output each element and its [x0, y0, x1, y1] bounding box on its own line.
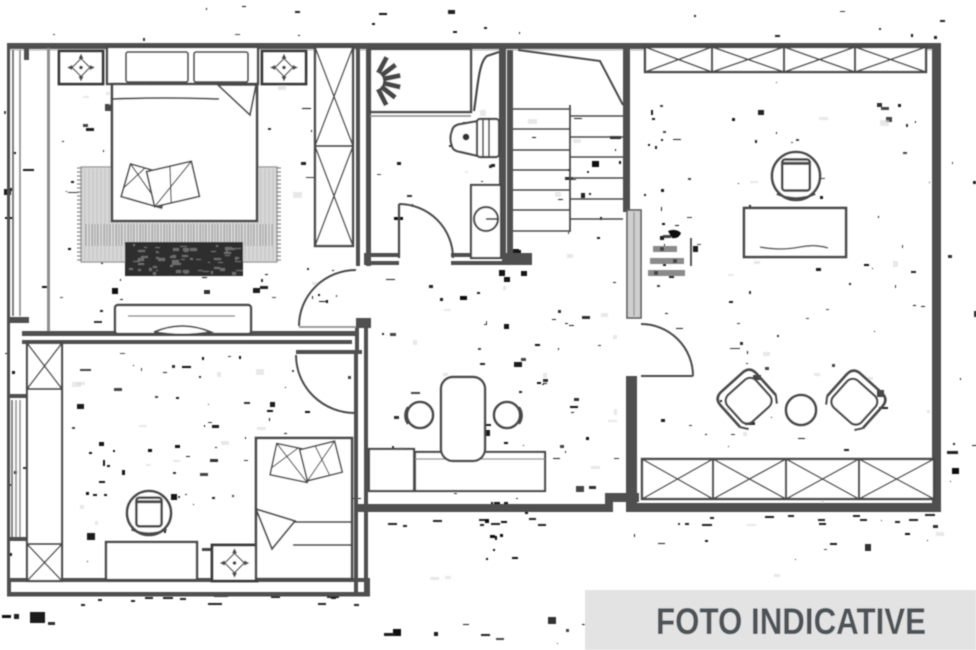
svg-text:FOTO INDICATIVE: FOTO INDICATIVE — [656, 601, 926, 642]
